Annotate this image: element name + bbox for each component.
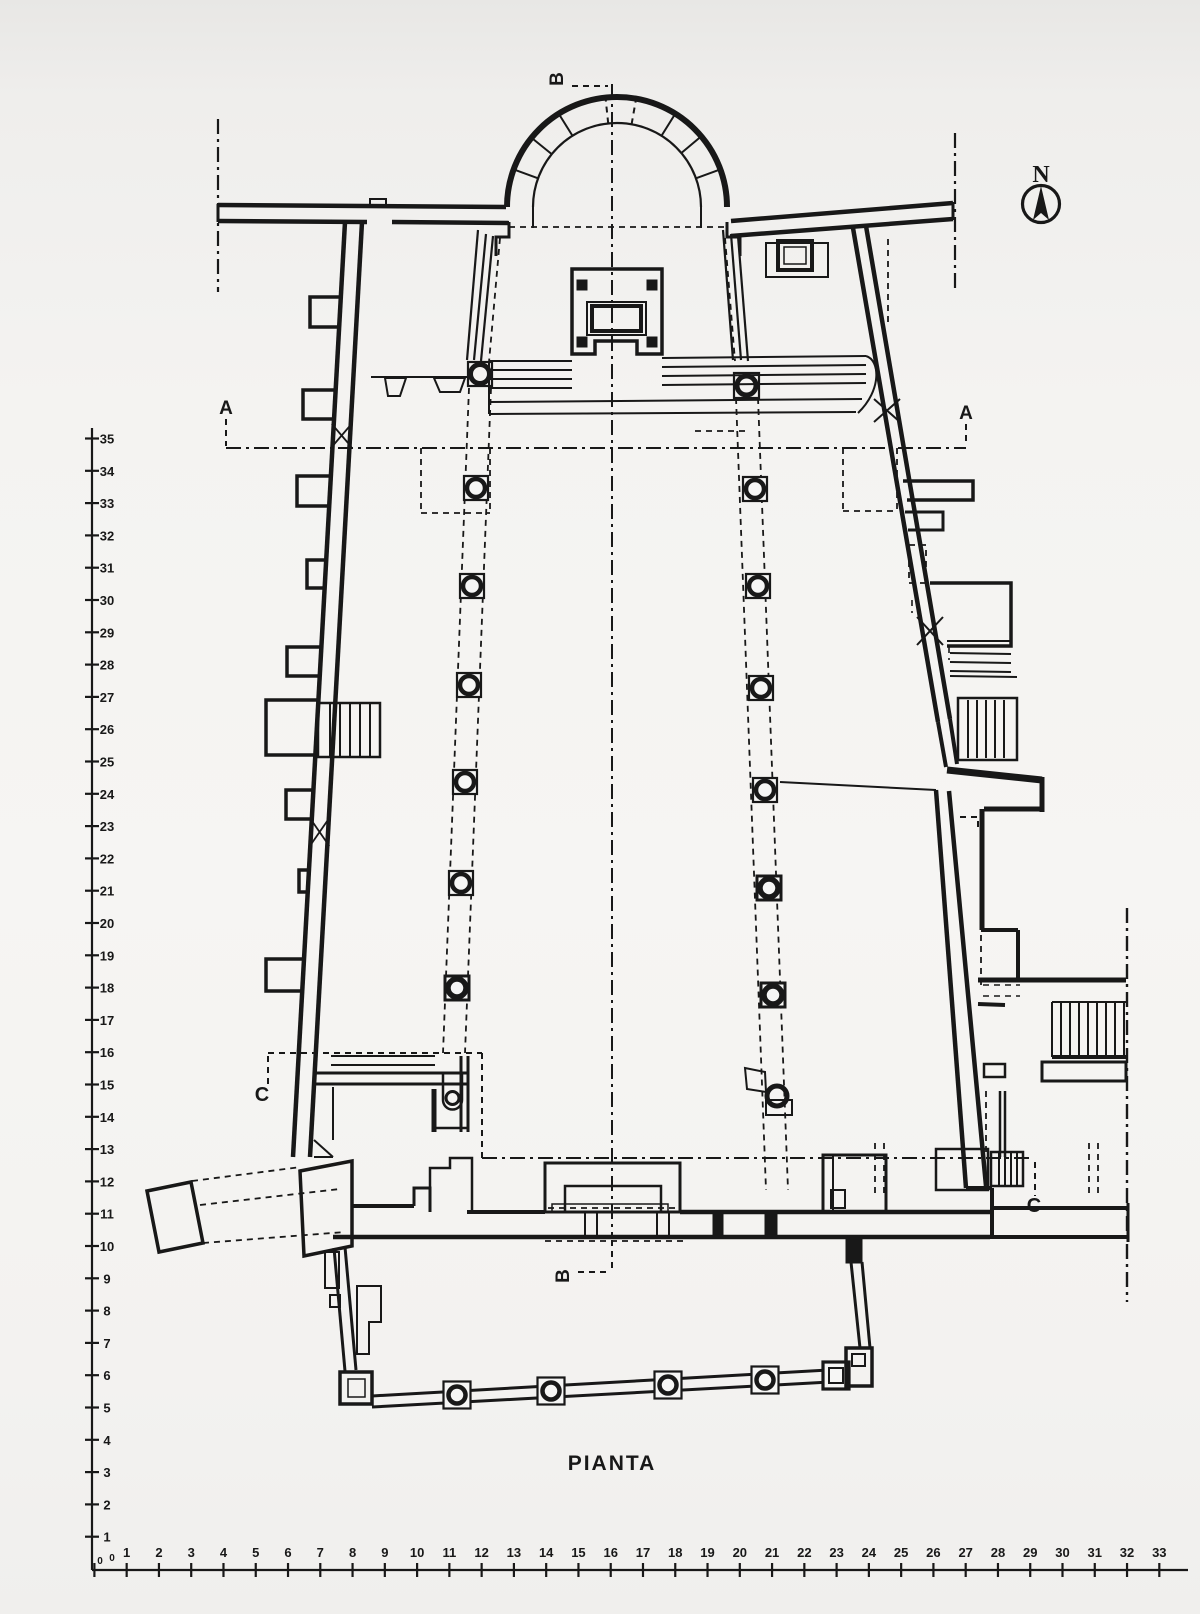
svg-text:31: 31 — [100, 561, 114, 576]
svg-text:25: 25 — [100, 755, 114, 770]
svg-text:14: 14 — [100, 1110, 115, 1125]
svg-text:7: 7 — [317, 1545, 324, 1560]
svg-text:21: 21 — [100, 884, 114, 899]
svg-text:A: A — [219, 398, 233, 419]
svg-text:12: 12 — [474, 1545, 488, 1560]
svg-text:PIANTA: PIANTA — [568, 1452, 657, 1475]
svg-text:17: 17 — [636, 1545, 650, 1560]
svg-text:20: 20 — [100, 916, 114, 931]
svg-text:35: 35 — [100, 432, 114, 447]
svg-text:10: 10 — [410, 1545, 424, 1560]
svg-text:32: 32 — [100, 528, 114, 543]
svg-text:N: N — [1032, 162, 1050, 188]
svg-text:13: 13 — [507, 1545, 521, 1560]
svg-text:21: 21 — [765, 1545, 779, 1560]
svg-text:2: 2 — [103, 1497, 110, 1512]
svg-text:23: 23 — [100, 819, 114, 834]
svg-text:24: 24 — [862, 1545, 877, 1560]
svg-text:9: 9 — [381, 1545, 388, 1560]
svg-text:16: 16 — [603, 1545, 617, 1560]
svg-text:22: 22 — [100, 851, 114, 866]
svg-text:6: 6 — [103, 1368, 110, 1383]
svg-text:15: 15 — [100, 1078, 114, 1093]
svg-text:19: 19 — [100, 948, 114, 963]
svg-text:23: 23 — [829, 1545, 843, 1560]
svg-text:27: 27 — [100, 690, 114, 705]
svg-text:32: 32 — [1120, 1545, 1134, 1560]
svg-text:27: 27 — [958, 1545, 972, 1560]
svg-text:11: 11 — [100, 1207, 114, 1222]
svg-text:1: 1 — [103, 1530, 110, 1545]
svg-text:3: 3 — [188, 1545, 195, 1560]
svg-text:28: 28 — [100, 658, 114, 673]
svg-text:A: A — [959, 403, 973, 424]
svg-text:4: 4 — [103, 1433, 111, 1448]
svg-text:0: 0 — [109, 1553, 115, 1564]
svg-text:3: 3 — [103, 1465, 110, 1480]
svg-text:14: 14 — [539, 1545, 554, 1560]
svg-text:19: 19 — [700, 1545, 714, 1560]
svg-text:5: 5 — [252, 1545, 259, 1560]
svg-text:16: 16 — [100, 1045, 114, 1060]
svg-text:26: 26 — [926, 1545, 940, 1560]
svg-text:30: 30 — [100, 593, 114, 608]
svg-text:8: 8 — [349, 1545, 356, 1560]
svg-text:17: 17 — [100, 1013, 114, 1028]
svg-text:28: 28 — [991, 1545, 1005, 1560]
svg-text:29: 29 — [1023, 1545, 1037, 1560]
svg-text:8: 8 — [103, 1304, 110, 1319]
svg-text:24: 24 — [100, 787, 115, 802]
svg-text:C: C — [255, 1084, 269, 1106]
svg-text:31: 31 — [1088, 1545, 1102, 1560]
svg-text:1: 1 — [123, 1545, 130, 1560]
svg-text:6: 6 — [284, 1545, 291, 1560]
svg-text:4: 4 — [220, 1545, 228, 1560]
svg-text:22: 22 — [797, 1545, 811, 1560]
svg-text:29: 29 — [100, 625, 114, 640]
svg-text:B: B — [547, 72, 568, 86]
svg-text:2: 2 — [155, 1545, 162, 1560]
svg-text:33: 33 — [1152, 1545, 1166, 1560]
svg-text:B: B — [553, 1269, 574, 1283]
svg-text:0: 0 — [97, 1556, 103, 1567]
svg-text:26: 26 — [100, 722, 114, 737]
svg-text:5: 5 — [103, 1401, 110, 1416]
svg-text:11: 11 — [442, 1545, 456, 1560]
svg-text:34: 34 — [100, 464, 115, 479]
svg-text:9: 9 — [103, 1271, 110, 1286]
svg-text:33: 33 — [100, 496, 114, 511]
svg-text:13: 13 — [100, 1142, 114, 1157]
svg-text:20: 20 — [733, 1545, 747, 1560]
svg-text:18: 18 — [668, 1545, 682, 1560]
svg-text:18: 18 — [100, 981, 114, 996]
svg-text:7: 7 — [103, 1336, 110, 1351]
svg-text:25: 25 — [894, 1545, 908, 1560]
svg-text:10: 10 — [100, 1239, 114, 1254]
svg-text:30: 30 — [1055, 1545, 1069, 1560]
svg-text:12: 12 — [100, 1174, 114, 1189]
svg-text:15: 15 — [571, 1545, 585, 1560]
